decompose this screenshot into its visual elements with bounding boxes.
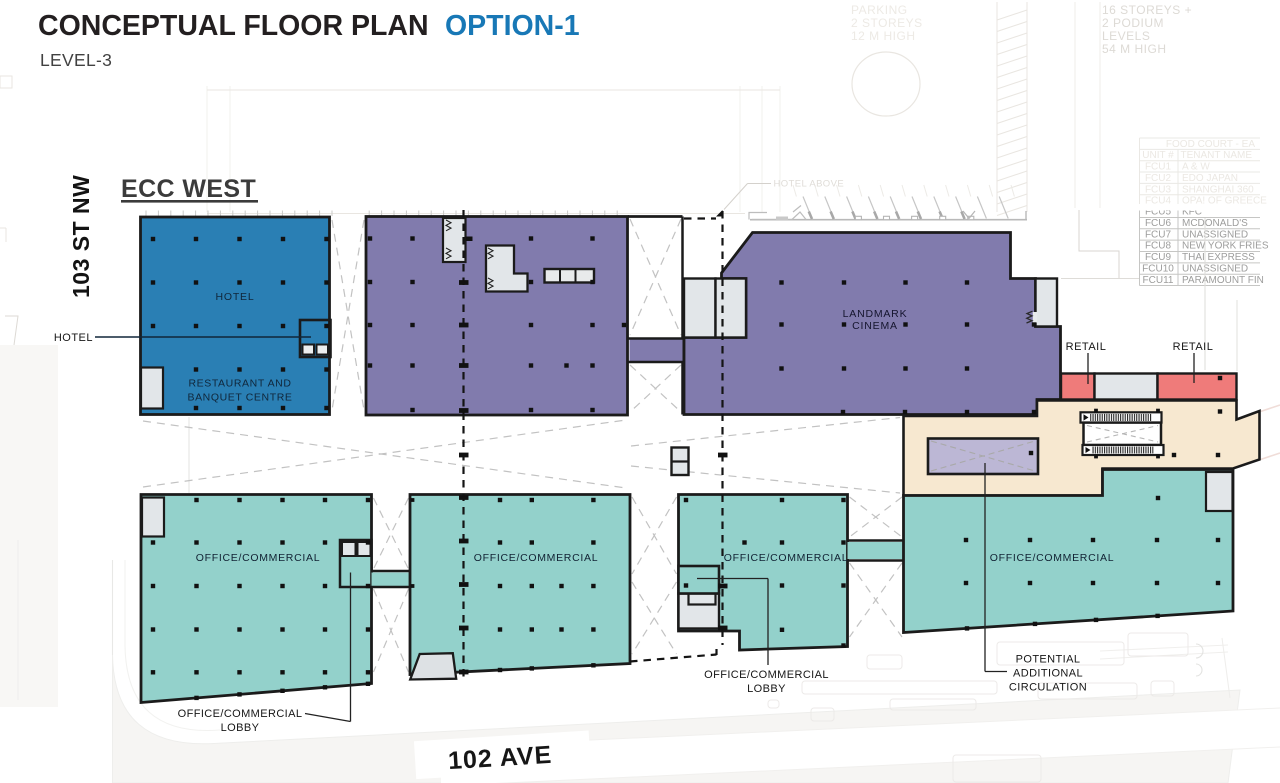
svg-text:FCU7: FCU7 — [1145, 229, 1172, 240]
svg-text:RETAIL: RETAIL — [1173, 341, 1214, 353]
svg-text:FCU3: FCU3 — [1145, 184, 1172, 195]
svg-text:OFFICE/COMMERCIAL: OFFICE/COMMERCIAL — [196, 552, 321, 564]
svg-text:CINEMA: CINEMA — [852, 320, 898, 332]
svg-text:MCDONALD'S: MCDONALD'S — [1182, 218, 1248, 229]
svg-text:PARAMOUNT FIN: PARAMOUNT FIN — [1182, 275, 1264, 286]
svg-text:OFFICE/COMMERCIAL: OFFICE/COMMERCIAL — [990, 552, 1115, 564]
svg-text:2 PODIUM: 2 PODIUM — [1102, 16, 1164, 30]
svg-text:OPTION-1: OPTION-1 — [445, 10, 580, 42]
svg-text:TENANT NAME: TENANT NAME — [1181, 150, 1253, 161]
svg-text:CIRCULATION: CIRCULATION — [1009, 682, 1087, 694]
svg-text:EDO JAPAN: EDO JAPAN — [1182, 173, 1238, 184]
svg-text:OFFICE/COMMERCIAL: OFFICE/COMMERCIAL — [474, 552, 599, 564]
svg-text:FCU8: FCU8 — [1145, 241, 1172, 252]
svg-text:ADDITIONAL: ADDITIONAL — [1013, 668, 1083, 680]
svg-text:RETAIL: RETAIL — [1066, 341, 1107, 353]
svg-text:SHANGHAI 360: SHANGHAI 360 — [1182, 184, 1254, 195]
svg-text:FCU2: FCU2 — [1145, 173, 1172, 184]
svg-text:RESTAURANT AND: RESTAURANT AND — [188, 378, 291, 390]
svg-text:A & W: A & W — [1182, 162, 1210, 173]
svg-text:103 ST NW: 103 ST NW — [68, 175, 94, 298]
svg-text:OFFICE/COMMERCIAL: OFFICE/COMMERCIAL — [178, 708, 303, 720]
svg-text:LEVELS: LEVELS — [1102, 29, 1150, 43]
svg-text:FCU1: FCU1 — [1145, 162, 1172, 173]
svg-text:UNASSIGNED: UNASSIGNED — [1182, 229, 1248, 240]
svg-text:HOTEL ABOVE: HOTEL ABOVE — [774, 179, 845, 190]
svg-text:FCU10: FCU10 — [1142, 263, 1174, 274]
svg-text:54 M HIGH: 54 M HIGH — [1102, 42, 1167, 56]
svg-text:OFFICE/COMMERCIAL: OFFICE/COMMERCIAL — [724, 552, 849, 564]
svg-text:LEVEL-3: LEVEL-3 — [40, 50, 112, 70]
svg-text:12 M HIGH: 12 M HIGH — [851, 29, 916, 43]
svg-text:ECC WEST: ECC WEST — [121, 175, 256, 203]
svg-text:2 STOREYS: 2 STOREYS — [851, 16, 923, 30]
svg-text:OFFICE/COMMERCIAL: OFFICE/COMMERCIAL — [704, 669, 829, 681]
svg-text:16 STOREYS +: 16 STOREYS + — [1102, 3, 1192, 17]
svg-text:FCU11: FCU11 — [1143, 275, 1174, 286]
svg-text:HOTEL: HOTEL — [215, 291, 254, 303]
svg-text:PARKING: PARKING — [851, 3, 908, 17]
svg-text:UNIT #: UNIT # — [1142, 150, 1174, 161]
svg-text:LANDMARK: LANDMARK — [843, 308, 908, 320]
svg-text:POTENTIAL: POTENTIAL — [1016, 654, 1081, 666]
svg-text:CONCEPTUAL FLOOR PLAN: CONCEPTUAL FLOOR PLAN — [38, 10, 429, 42]
svg-text:NEW YORK FRIES: NEW YORK FRIES — [1182, 241, 1269, 252]
svg-text:UNASSIGNED: UNASSIGNED — [1182, 263, 1248, 274]
svg-text:FOOD COURT - EA: FOOD COURT - EA — [1166, 139, 1255, 150]
svg-text:FCU9: FCU9 — [1145, 252, 1172, 263]
svg-text:LOBBY: LOBBY — [221, 722, 260, 734]
svg-text:THAI EXPRESS: THAI EXPRESS — [1182, 252, 1255, 263]
svg-text:FCU6: FCU6 — [1145, 218, 1172, 229]
svg-text:HOTEL: HOTEL — [54, 332, 93, 344]
svg-text:LOBBY: LOBBY — [747, 683, 786, 695]
svg-text:BANQUET CENTRE: BANQUET CENTRE — [187, 392, 292, 404]
